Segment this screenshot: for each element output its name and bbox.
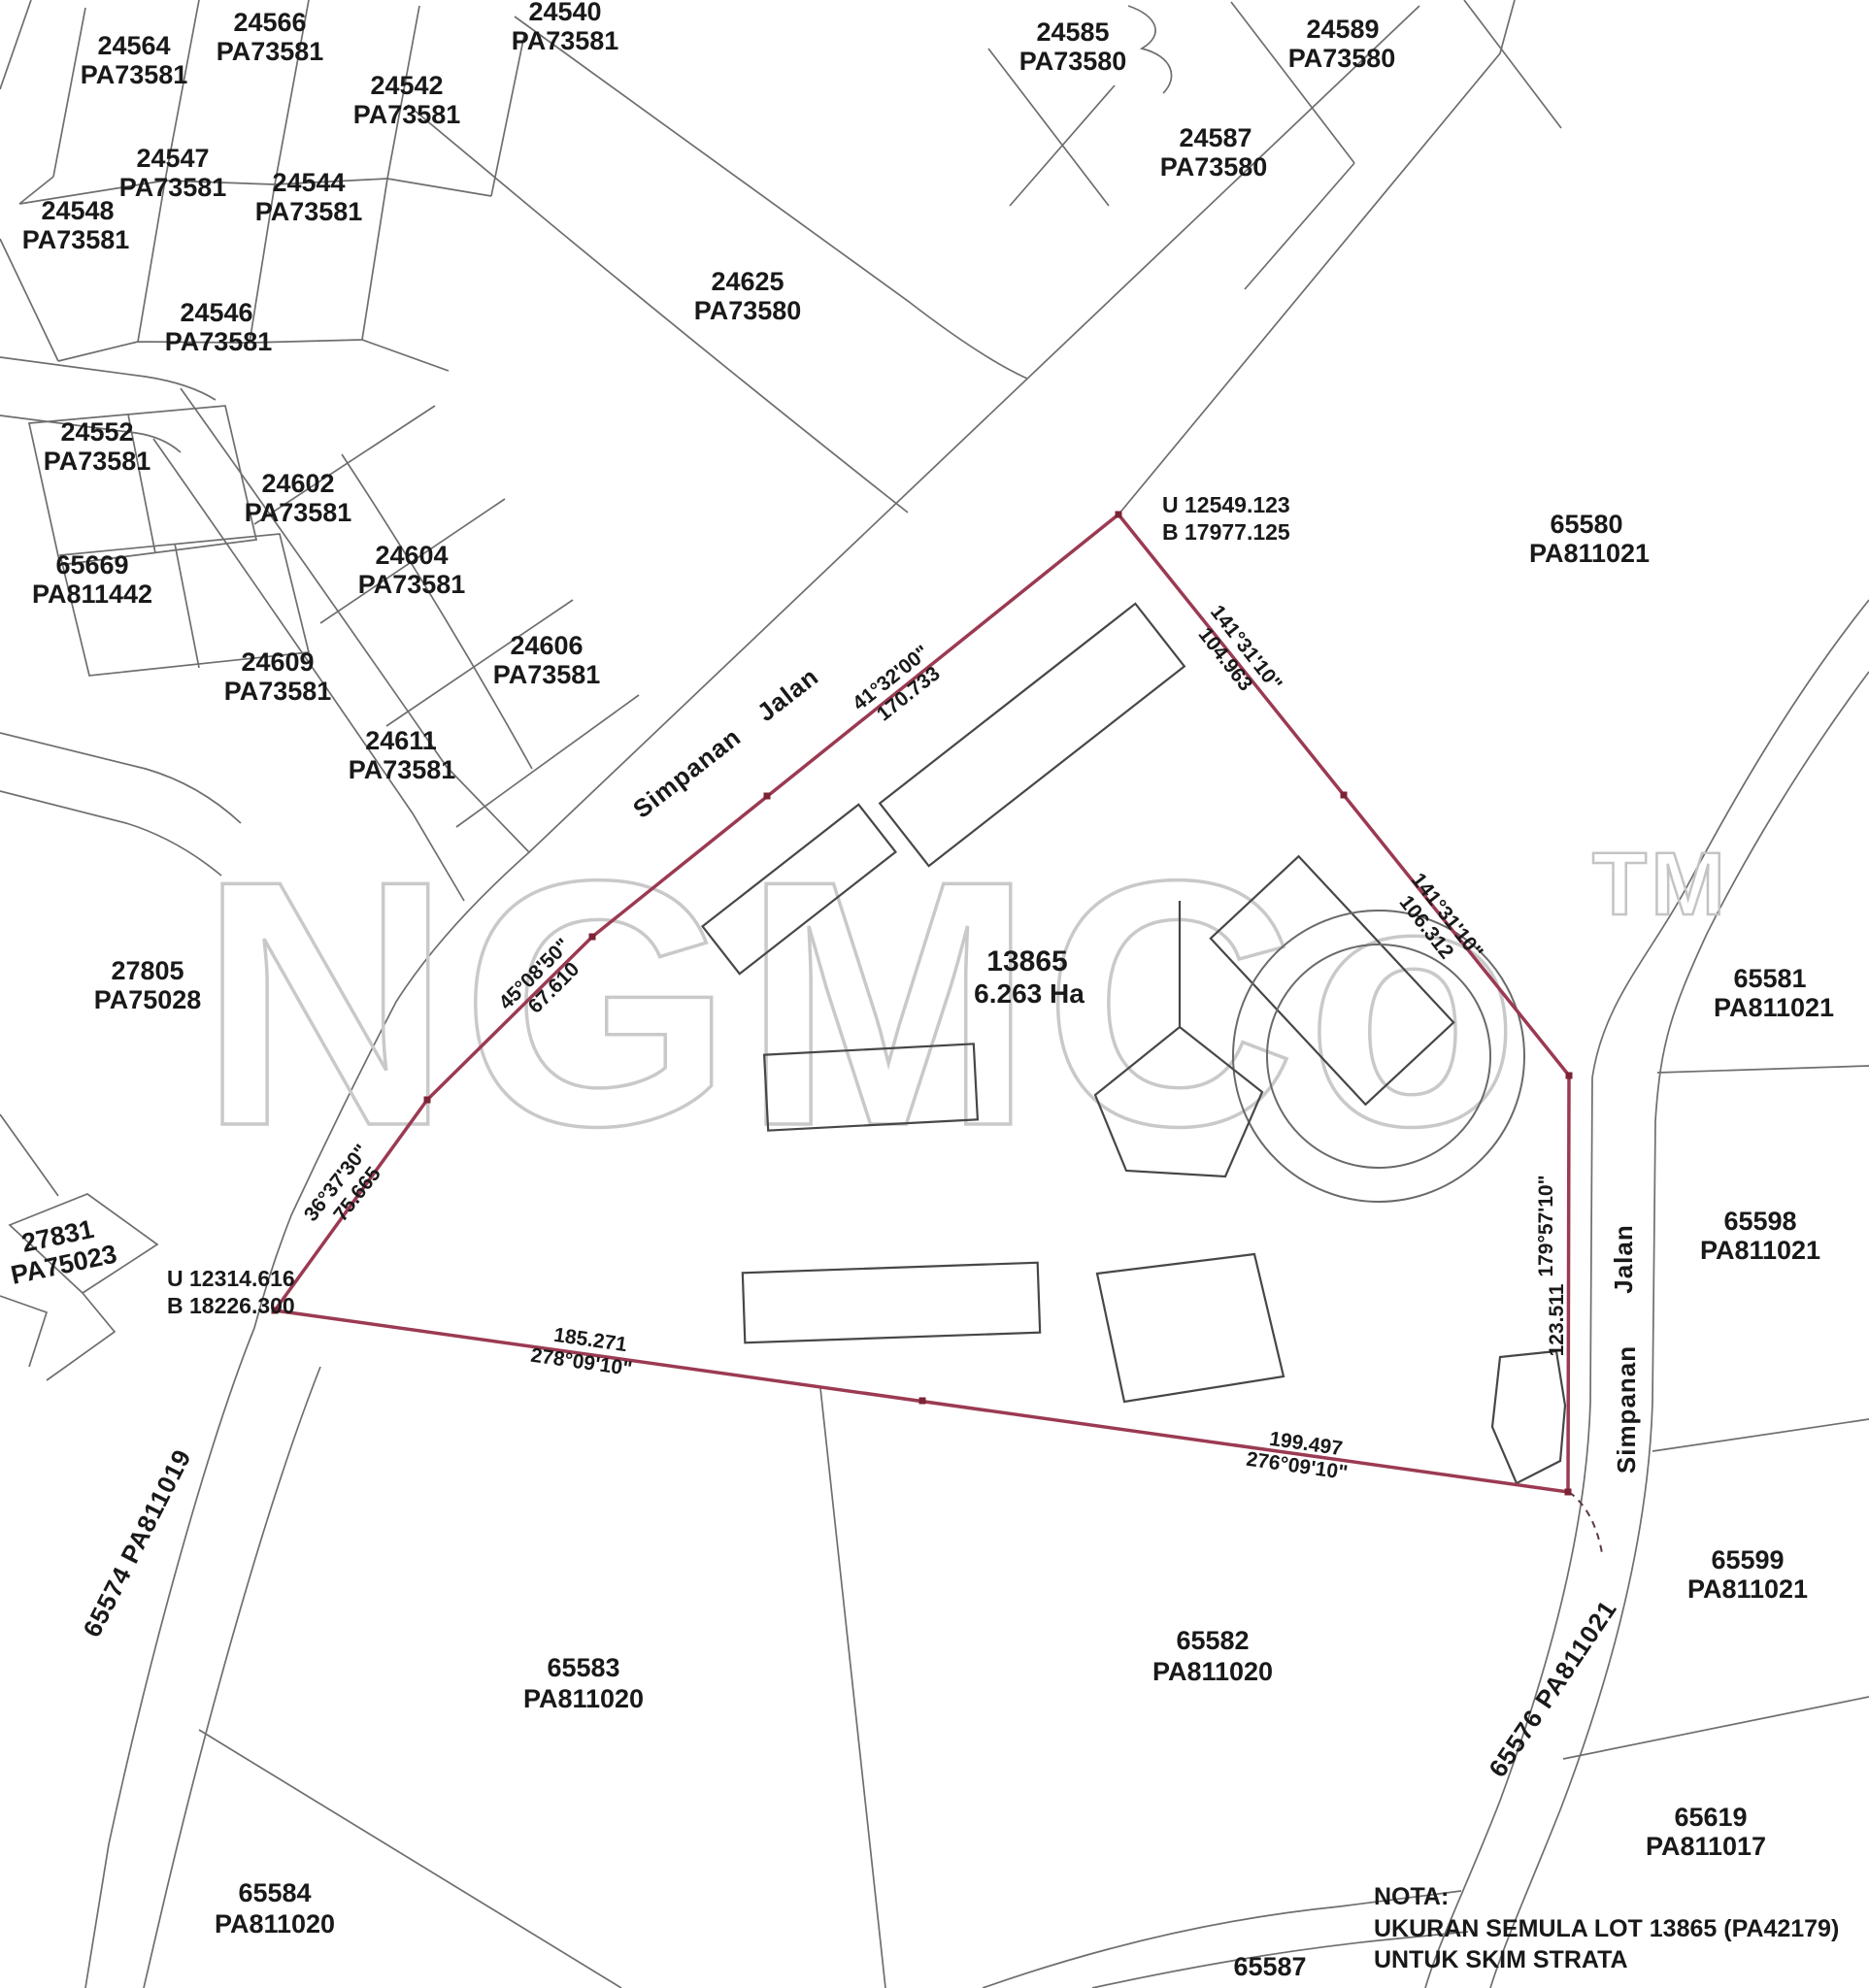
survey-map-page: NGMCo TM 24564PA73581 245: [0, 0, 1869, 1988]
parcel-label-65580: 65580PA811021: [1529, 510, 1650, 568]
parcel-label-24587: 24587PA73580: [1160, 123, 1268, 182]
svg-text:PA73581: PA73581: [512, 26, 619, 55]
svg-text:PA811020: PA811020: [215, 1909, 335, 1938]
parcel-label-65598: 65598PA811021: [1700, 1207, 1820, 1265]
parcel-label-24609: 24609PA73581: [224, 647, 332, 706]
parcel-label-65669: 65669PA811442: [32, 550, 152, 609]
svg-text:Simpanan: Simpanan: [1612, 1345, 1641, 1474]
svg-text:PA73581: PA73581: [358, 570, 466, 599]
svg-text:24606: 24606: [510, 631, 583, 660]
note-line1: UKURAN SEMULA LOT 13865 (PA42179): [1374, 1915, 1839, 1942]
svg-text:PA73581: PA73581: [81, 60, 188, 89]
survey-point-north-u: U 12549.123: [1162, 492, 1290, 517]
svg-text:24552: 24552: [60, 417, 133, 447]
svg-text:24566: 24566: [233, 8, 306, 37]
svg-text:24542: 24542: [370, 71, 443, 100]
note-line2: UNTUK SKIM STRATA: [1374, 1946, 1628, 1973]
svg-text:PA73581: PA73581: [119, 173, 227, 202]
parcel-label-24566: 24566PA73581: [217, 8, 324, 66]
bearing-south-right: 199.497276°09'10": [1245, 1425, 1352, 1484]
svg-text:PA73580: PA73580: [1019, 47, 1127, 76]
svg-text:65581: 65581: [1733, 964, 1806, 993]
parcel-label-24606: 24606PA73581: [493, 631, 601, 689]
watermark-tm: TM: [1592, 835, 1729, 934]
parcel-label-24544: 24544PA73581: [255, 168, 363, 226]
svg-text:24611: 24611: [365, 726, 437, 755]
svg-text:PA811442: PA811442: [32, 580, 152, 609]
parcel-label-65581: 65581PA811021: [1714, 964, 1834, 1022]
parcel-label-24625: 24625PA73580: [694, 267, 802, 325]
parcel-label-65583: 65583PA811020: [523, 1653, 644, 1713]
svg-text:24564: 24564: [97, 31, 170, 60]
road-simpanan-right: Simpanan: [1612, 1345, 1641, 1474]
svg-text:24587: 24587: [1179, 123, 1252, 152]
svg-text:PA73581: PA73581: [493, 660, 601, 689]
svg-text:24585: 24585: [1036, 17, 1109, 47]
parcel-label-65582: 65582PA811020: [1152, 1626, 1273, 1686]
parcel-label-24540: 24540PA73581: [512, 0, 619, 55]
parcel-label-24564: 24564PA73581: [81, 31, 188, 89]
road-jalan-upper: Jalan: [751, 661, 824, 727]
svg-text:179°57'10": 179°57'10": [1535, 1175, 1557, 1276]
road-jalan-right: Jalan: [1609, 1224, 1638, 1294]
note-block: NOTA: UKURAN SEMULA LOT 13865 (PA42179) …: [1374, 1883, 1839, 1973]
watermark: NGMCo TM: [199, 809, 1729, 1199]
svg-text:65574 PA811019: 65574 PA811019: [77, 1444, 196, 1641]
svg-text:65583: 65583: [547, 1653, 619, 1682]
svg-text:PA73581: PA73581: [224, 677, 332, 706]
svg-text:PA73581: PA73581: [353, 100, 461, 129]
parcel-label-24604: 24604PA73581: [358, 541, 466, 599]
svg-text:PA811020: PA811020: [1152, 1657, 1273, 1686]
svg-text:27805: 27805: [111, 956, 184, 985]
svg-text:65582: 65582: [1176, 1626, 1249, 1655]
svg-text:24544: 24544: [272, 168, 345, 197]
svg-text:Jalan: Jalan: [1609, 1224, 1638, 1294]
svg-text:PA75028: PA75028: [94, 985, 202, 1014]
svg-text:PA73581: PA73581: [44, 447, 151, 476]
svg-text:PA73581: PA73581: [165, 327, 273, 356]
svg-text:PA811021: PA811021: [1687, 1574, 1808, 1604]
parcel-label-24548: 24548PA73581: [22, 196, 130, 254]
parcel-label-65587: 65587PA811020: [1210, 1952, 1330, 1988]
svg-text:65584: 65584: [238, 1878, 311, 1907]
svg-text:PA73581: PA73581: [349, 755, 456, 784]
svg-text:24540: 24540: [528, 0, 601, 26]
svg-text:PA811017: PA811017: [1646, 1832, 1766, 1861]
note-title: NOTA:: [1374, 1883, 1449, 1910]
svg-text:65669: 65669: [55, 550, 128, 580]
svg-text:PA73580: PA73580: [1288, 44, 1396, 73]
bearing-east-distance: 123.511: [1546, 1283, 1568, 1356]
parcel-label-24547: 24547PA73581: [119, 144, 227, 202]
svg-text:24546: 24546: [180, 298, 252, 327]
svg-text:65599: 65599: [1711, 1545, 1784, 1574]
svg-text:PA73581: PA73581: [22, 225, 130, 254]
svg-text:PA73581: PA73581: [245, 498, 352, 527]
parcel-label-65599: 65599PA811021: [1687, 1545, 1808, 1604]
subject-lot-number: 13865: [986, 945, 1067, 977]
svg-text:24547: 24547: [136, 144, 209, 173]
bearing-south-left: 185.271278°09'10": [529, 1321, 637, 1380]
svg-text:24548: 24548: [41, 196, 114, 225]
svg-text:123.511: 123.511: [1546, 1283, 1568, 1356]
subject-lot-area: 6.263 Ha: [974, 978, 1085, 1009]
svg-text:PA811021: PA811021: [1529, 539, 1650, 568]
svg-text:PA73581: PA73581: [217, 37, 324, 66]
bearing-east-angle: 179°57'10": [1535, 1175, 1557, 1276]
svg-text:65598: 65598: [1723, 1207, 1796, 1236]
svg-text:65580: 65580: [1550, 510, 1622, 539]
svg-text:PA811021: PA811021: [1700, 1236, 1820, 1265]
svg-text:PA73580: PA73580: [694, 296, 802, 325]
parcel-label-65584: 65584PA811020: [215, 1878, 335, 1938]
cadastral-map: NGMCo TM 24564PA73581 245: [0, 0, 1869, 1988]
svg-text:24602: 24602: [261, 469, 334, 498]
parcel-label-24542: 24542PA73581: [353, 71, 461, 129]
svg-text:Jalan: Jalan: [751, 661, 824, 727]
svg-text:PA73581: PA73581: [255, 197, 363, 226]
svg-text:24625: 24625: [711, 267, 784, 296]
svg-text:PA73580: PA73580: [1160, 152, 1268, 182]
svg-text:65619: 65619: [1674, 1803, 1747, 1832]
parcel-label-65619: 65619PA811017: [1646, 1803, 1766, 1861]
survey-point-west-u: U 12314.616: [167, 1266, 295, 1291]
svg-text:24609: 24609: [241, 647, 314, 677]
svg-text:65587: 65587: [1233, 1952, 1306, 1981]
parcel-label-24589: 24589PA73580: [1288, 15, 1396, 73]
survey-point-west-b: B 18226.300: [167, 1293, 295, 1318]
parcel-label-24611: 24611PA73581: [349, 726, 456, 784]
svg-text:24589: 24589: [1306, 15, 1379, 44]
parcel-label-27805: 27805PA75028: [94, 956, 202, 1014]
svg-text:PA811021: PA811021: [1714, 993, 1834, 1022]
parcel-label-24552: 24552PA73581: [44, 417, 151, 476]
svg-text:PA811020: PA811020: [523, 1684, 644, 1713]
svg-text:24604: 24604: [375, 541, 448, 570]
parcel-label-24602: 24602PA73581: [245, 469, 352, 527]
survey-point-north-b: B 17977.125: [1162, 519, 1290, 545]
road-65574: 65574 PA811019: [77, 1444, 196, 1641]
parcel-label-27831: 27831PA75023: [2, 1210, 119, 1290]
svg-text:PA811020: PA811020: [1210, 1983, 1330, 1988]
parcel-label-24585: 24585PA73580: [1019, 17, 1127, 76]
